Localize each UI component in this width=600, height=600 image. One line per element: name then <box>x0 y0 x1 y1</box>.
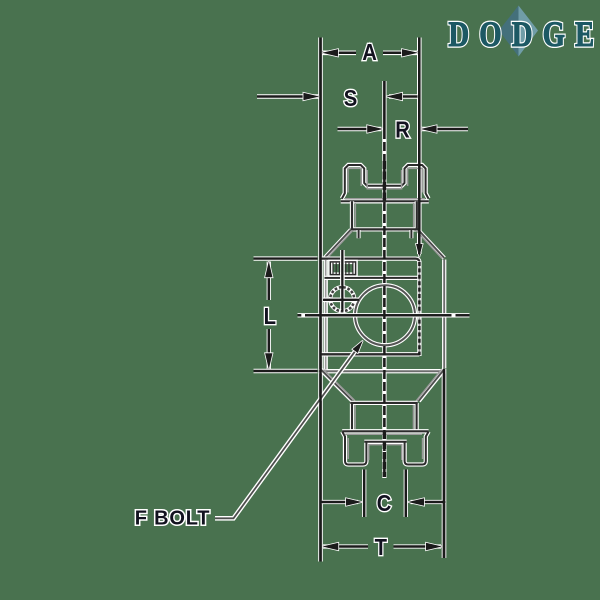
svg-text:R: R <box>395 116 410 143</box>
svg-text:S: S <box>344 85 358 112</box>
svg-text:F BOLT: F BOLT <box>135 507 211 529</box>
svg-text:C: C <box>377 490 392 517</box>
svg-text:T: T <box>375 534 387 561</box>
svg-text:DODGE: DODGE <box>448 15 600 55</box>
svg-text:L: L <box>264 303 276 330</box>
svg-text:A: A <box>362 39 377 66</box>
